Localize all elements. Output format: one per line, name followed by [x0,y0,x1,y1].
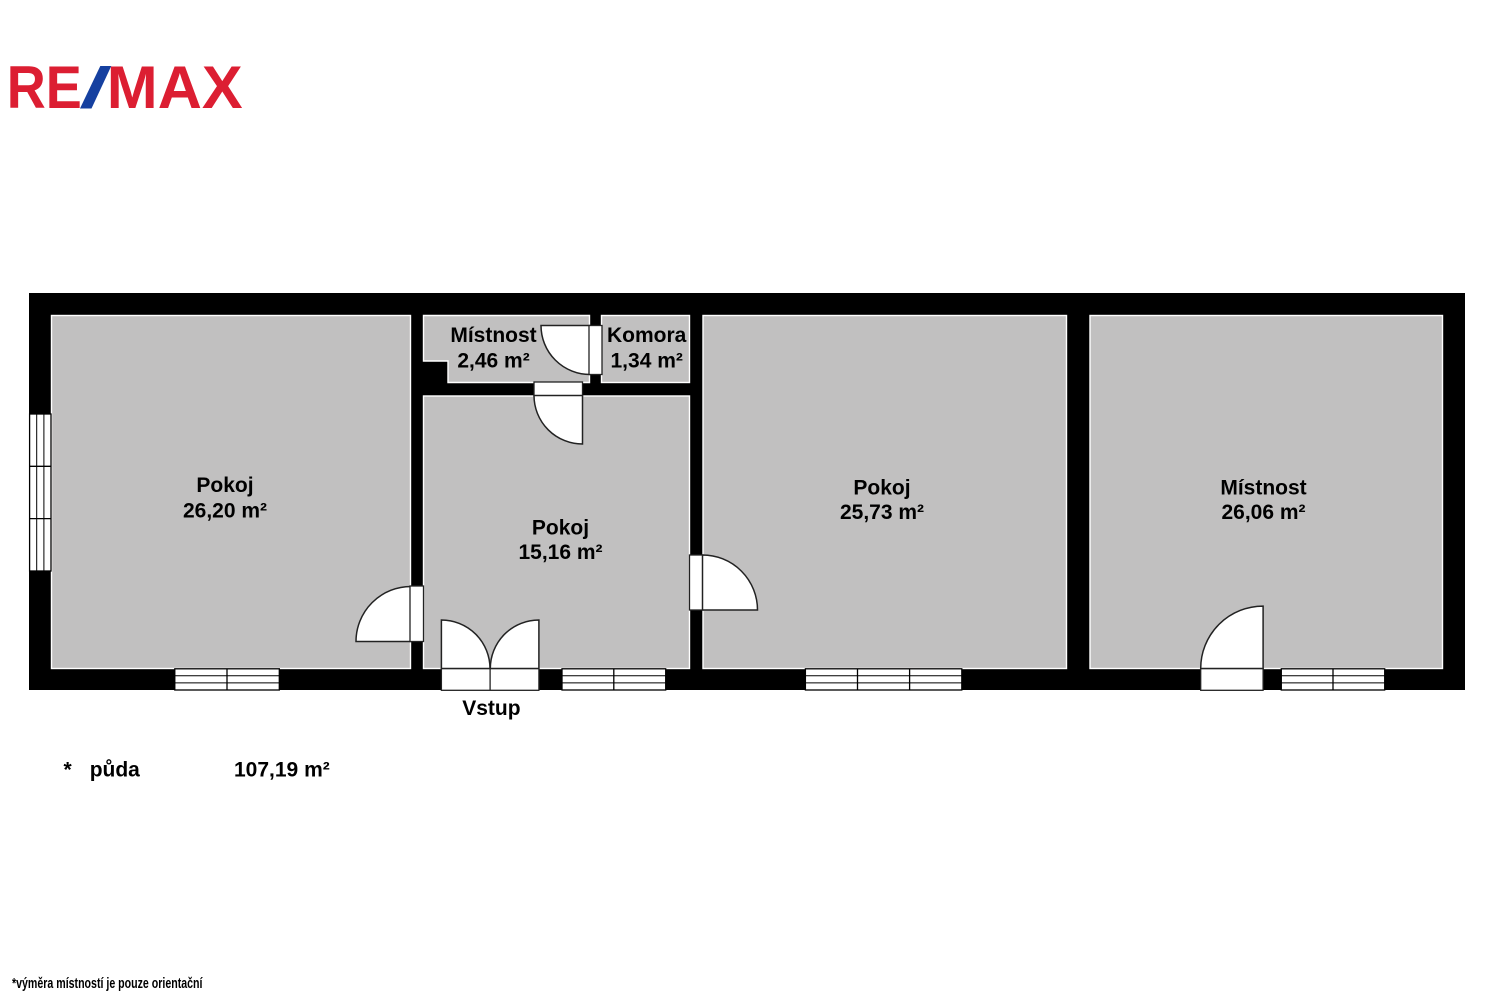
svg-text:Komora: Komora [607,324,687,347]
svg-text:15,16 m²: 15,16 m² [518,541,602,564]
svg-text:Pokoj: Pokoj [532,517,589,540]
svg-text:26,20 m²: 26,20 m² [183,500,267,523]
svg-text:půda: půda [90,759,140,782]
svg-text:*výměra místností je pouze ori: *výměra místností je pouze orientační [12,976,203,992]
svg-text:Místnost: Místnost [450,324,536,347]
svg-text:25,73 m²: 25,73 m² [840,501,924,524]
svg-text:2,46 m²: 2,46 m² [457,350,529,373]
svg-text:MAX: MAX [107,53,243,121]
svg-text:107,19 m²: 107,19 m² [234,759,330,782]
svg-text:Pokoj: Pokoj [196,474,253,497]
svg-text:Místnost: Místnost [1220,477,1306,500]
svg-text:Pokoj: Pokoj [853,477,910,500]
svg-text:Vstup: Vstup [462,697,520,720]
svg-text:RE: RE [7,53,82,121]
svg-text:26,06 m²: 26,06 m² [1221,501,1305,524]
svg-text:*: * [64,759,73,782]
svg-text:1,34 m²: 1,34 m² [611,350,683,373]
